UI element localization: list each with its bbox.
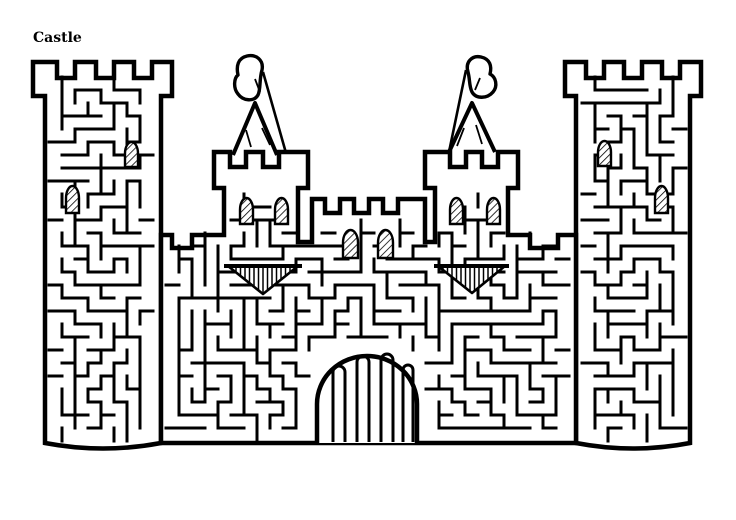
- right-turret-roof: [449, 103, 495, 152]
- arched-window: [487, 198, 500, 224]
- arched-window: [275, 198, 288, 224]
- left-turret-roof: [233, 103, 277, 155]
- worksheet-page: Castle: [0, 0, 736, 520]
- arched-window: [343, 230, 358, 258]
- right-flag: [467, 57, 496, 98]
- castle-gate: [317, 354, 417, 443]
- arched-window: [125, 142, 138, 167]
- arched-window: [240, 198, 253, 224]
- arched-window: [66, 186, 79, 213]
- arched-window: [450, 198, 463, 224]
- arched-window: [378, 230, 393, 258]
- left-flag: [235, 56, 263, 100]
- arched-window: [655, 186, 668, 213]
- castle-maze-figure: [0, 0, 736, 520]
- arched-window: [598, 141, 611, 166]
- turret-roofs: [233, 103, 495, 155]
